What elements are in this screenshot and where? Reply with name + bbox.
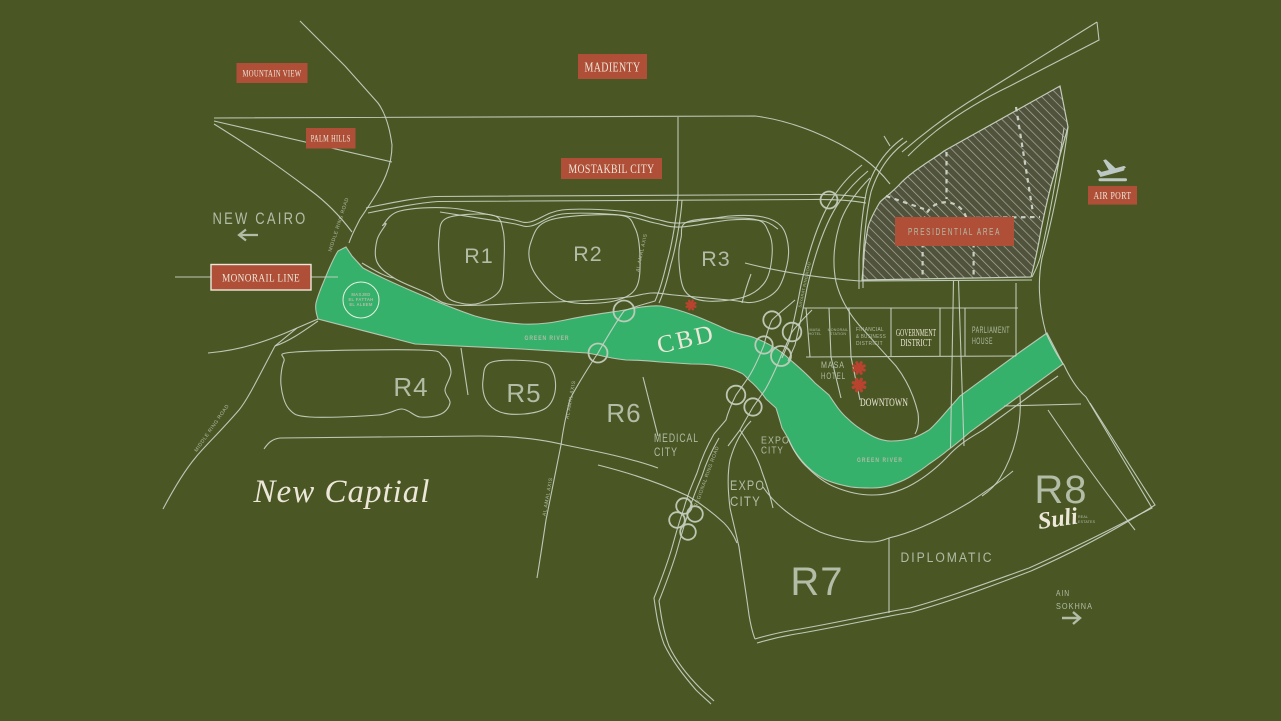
svg-text:DISTRICIT: DISTRICIT [856,341,883,347]
svg-text:HOTEL: HOTEL [821,371,846,381]
svg-text:HOTEL: HOTEL [809,332,822,336]
svg-text:R6: R6 [606,398,641,428]
svg-text:PALM HILLS: PALM HILLS [311,135,351,145]
svg-text:AIR PORT: AIR PORT [1094,191,1132,202]
svg-text:NEW CAIRO: NEW CAIRO [213,210,308,228]
svg-text:REAL: REAL [1078,515,1088,519]
svg-text:CITY: CITY [761,445,784,457]
svg-text:R3: R3 [701,247,730,271]
svg-text:FINANCIAL: FINANCIAL [856,327,884,333]
svg-text:MEDICAL: MEDICAL [654,433,699,445]
svg-text:MADIENTY: MADIENTY [585,59,641,74]
svg-text:AIN: AIN [1056,588,1070,598]
svg-text:R7: R7 [790,560,843,604]
svg-text:GREEN RIVER: GREEN RIVER [525,336,570,342]
svg-text:R5: R5 [506,378,541,408]
svg-text:EXPO: EXPO [730,477,765,493]
svg-text:STATION: STATION [830,332,847,336]
svg-text:DOWNTOWN: DOWNTOWN [860,395,908,409]
svg-text:MOSTAKBIL CITY: MOSTAKBIL CITY [569,161,655,176]
svg-text:R2: R2 [573,242,602,266]
svg-text:GREEN RIVER: GREEN RIVER [857,457,903,464]
svg-text:& BUSINESS: & BUSINESS [856,334,886,340]
svg-text:CITY: CITY [730,493,761,509]
svg-text:New Captial: New Captial [253,474,431,510]
svg-text:HOUSE: HOUSE [972,336,993,346]
svg-text:Suli: Suli [1036,504,1080,535]
svg-text:R4: R4 [393,372,428,402]
svg-text:DIPLOMATIC: DIPLOMATIC [901,550,994,565]
svg-text:EL ALEEM: EL ALEEM [349,302,373,307]
svg-text:ESTATES: ESTATES [1078,520,1096,524]
svg-text:CITY: CITY [654,447,678,459]
svg-text:SOKHNA: SOKHNA [1056,601,1093,611]
svg-text:R1: R1 [464,244,493,268]
svg-text:MONORAIL LINE: MONORAIL LINE [222,272,300,284]
svg-text:PARLIAMENT: PARLIAMENT [972,325,1010,335]
svg-text:PRESIDENTIAL AREA: PRESIDENTIAL AREA [908,227,1001,238]
svg-text:MASA: MASA [821,360,845,370]
svg-text:DISTRICT: DISTRICT [901,338,932,349]
svg-text:MOUNTAIN VIEW: MOUNTAIN VIEW [243,69,302,79]
